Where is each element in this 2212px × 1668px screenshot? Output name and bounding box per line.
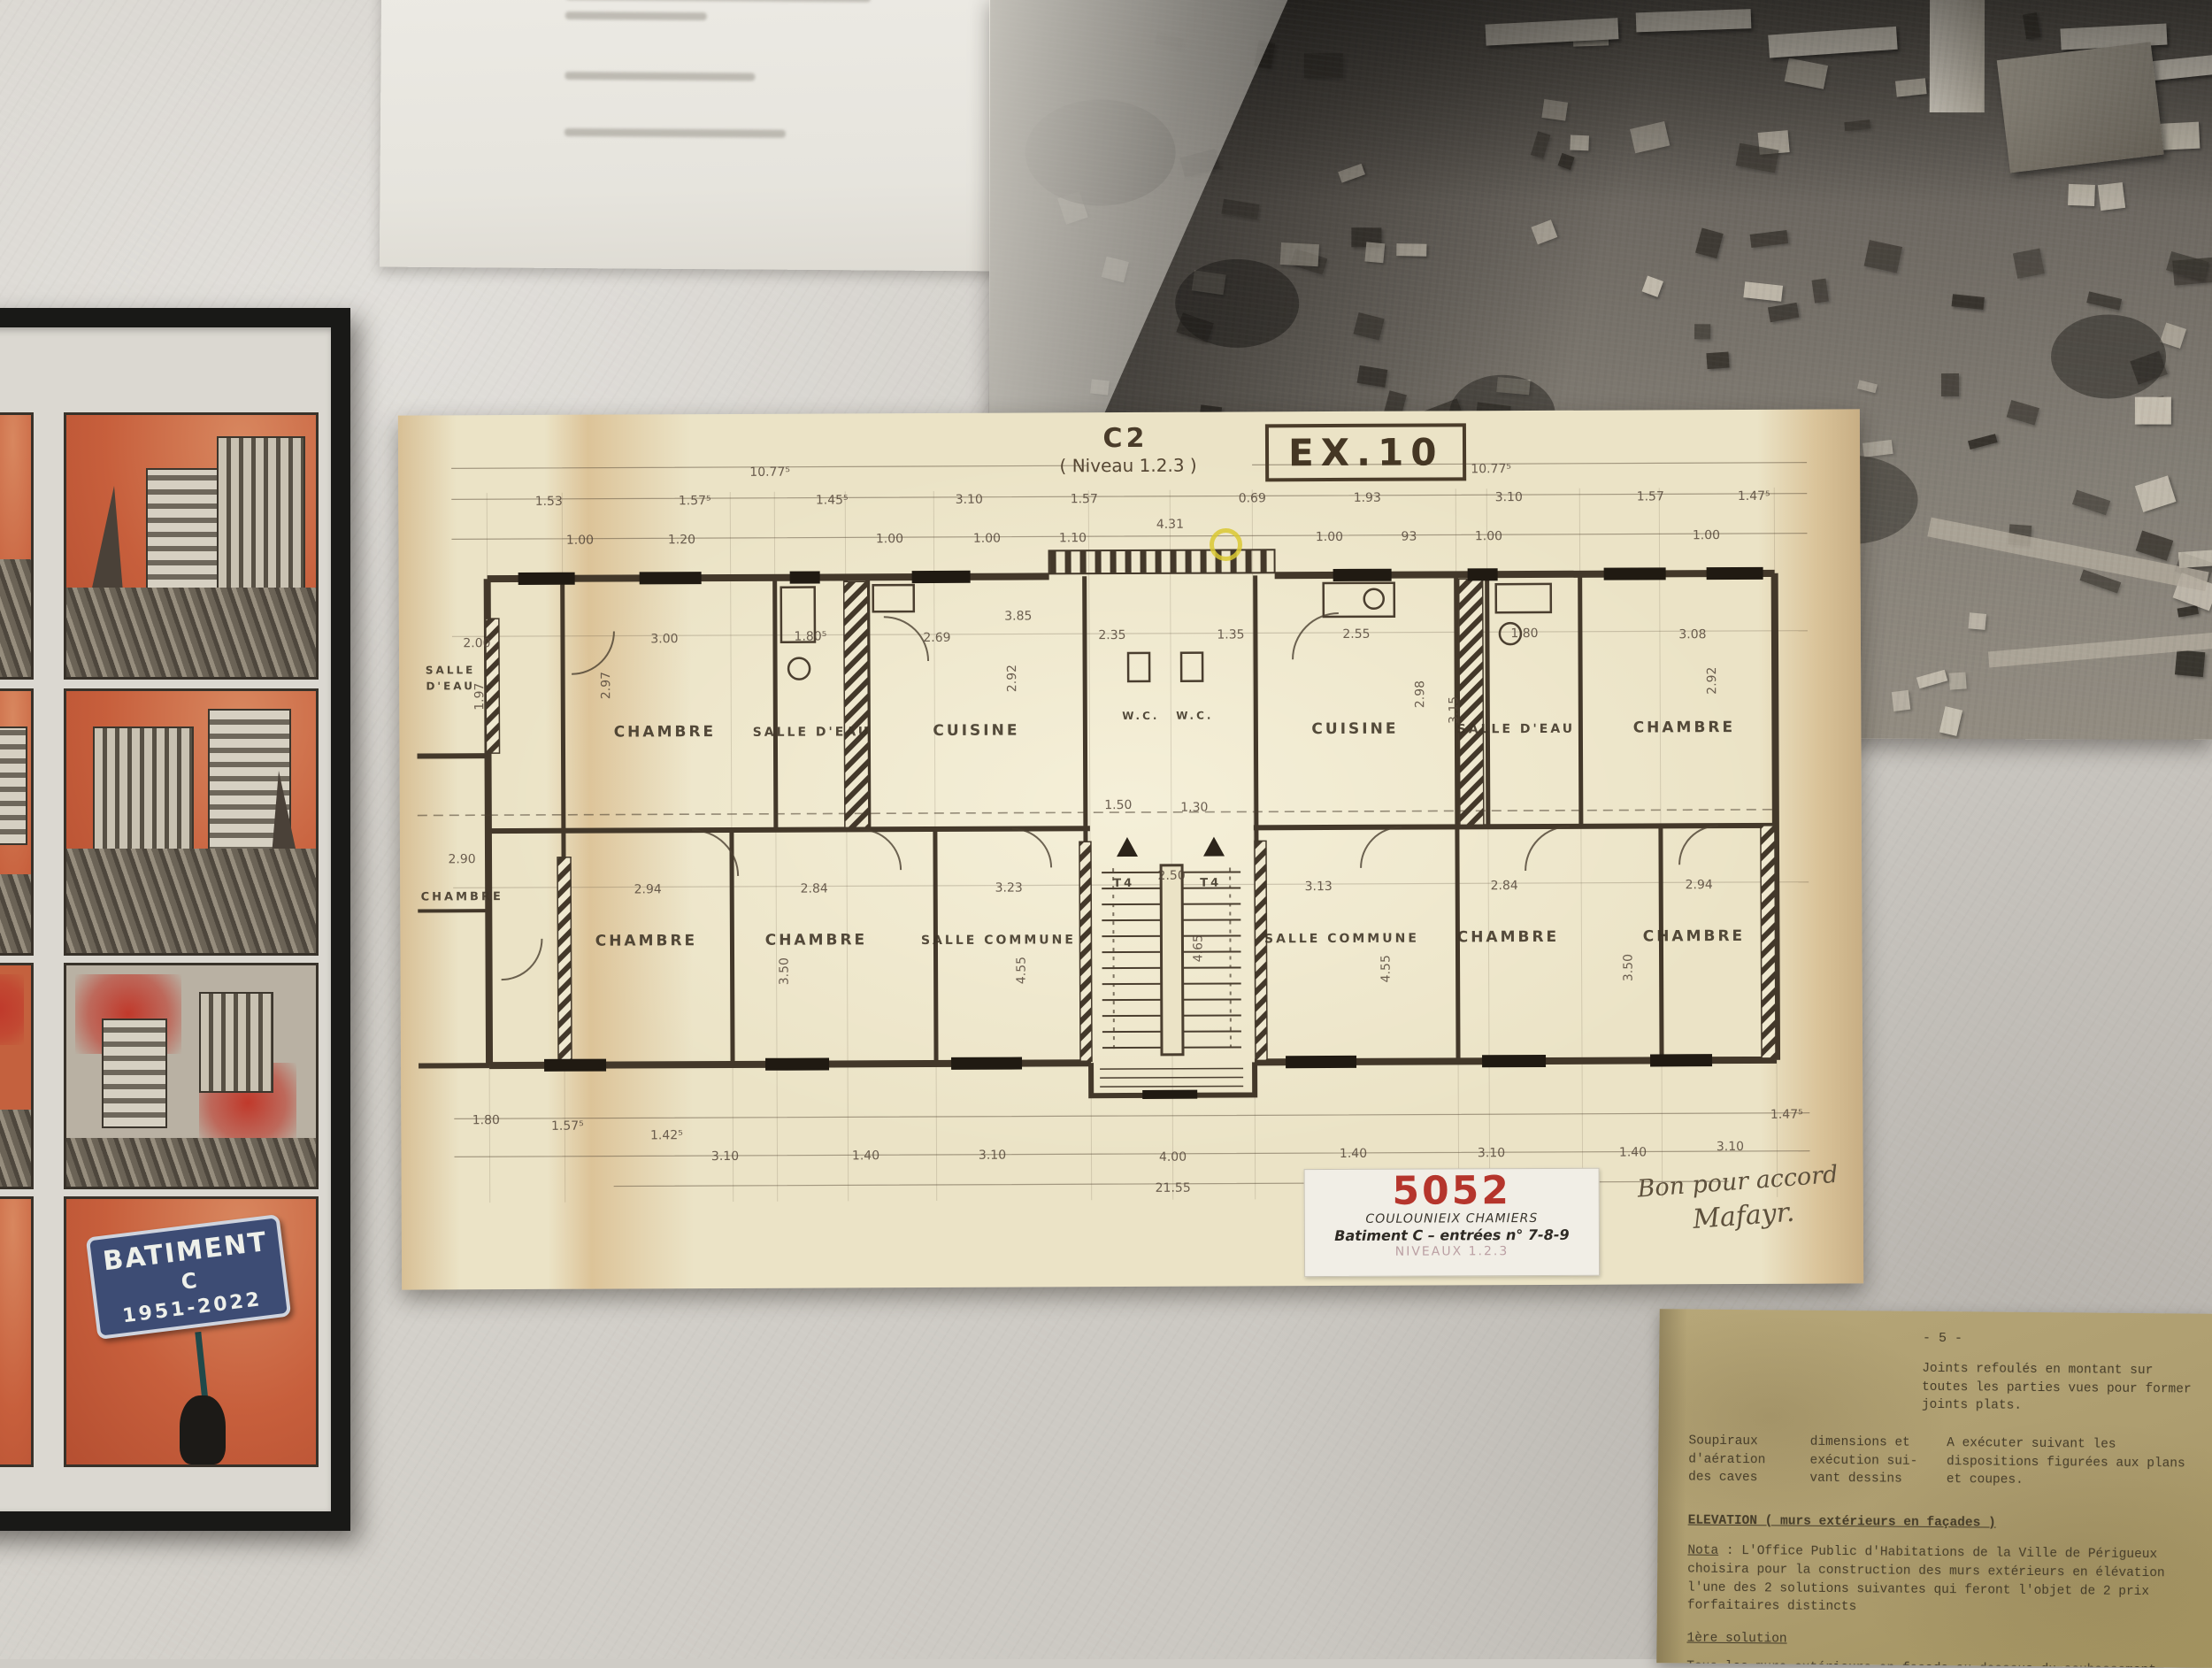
typed-note-line	[565, 0, 871, 2]
doc-page-number: - 5 -	[1841, 1328, 2044, 1349]
panel-sky	[0, 1199, 31, 1464]
floor-plan-svg: 10.77⁵10.77⁵1.531.57⁵1.45⁵3.101.574.310.…	[398, 409, 1863, 1289]
dimension-label: 1.80	[1510, 626, 1538, 641]
stair-direction-arrows	[1117, 837, 1225, 857]
dimension-label: 2.94	[634, 882, 662, 896]
doc-nota-label: Nota	[1687, 1544, 1718, 1558]
dimension-label: 1.57⁵	[679, 494, 711, 508]
dimension-label: 2.50	[1158, 869, 1186, 883]
red-patch	[0, 974, 24, 1045]
dimension-label: 21.55	[1156, 1181, 1191, 1195]
comic-panel-demolition-1	[64, 412, 319, 680]
dimension-label: 4.00	[1159, 1150, 1187, 1165]
dimension-label: 3.10	[956, 493, 983, 507]
dimension-label: 3.15	[1447, 696, 1461, 724]
dimension-label: 1.53	[535, 495, 563, 509]
room-label: SALLE	[426, 664, 475, 676]
dimension-label: 1.40	[1340, 1147, 1367, 1161]
exhibition-wall-photo: { "plan": { "title": "C2", "subtitle": "…	[0, 0, 2212, 1659]
dimension-label: 10.77⁵	[1471, 462, 1511, 476]
doc-three-columns: Soupiraux d'aération des caves dimension…	[1688, 1433, 2195, 1492]
city-building	[199, 992, 273, 1093]
room-label: CHAMBRE	[1633, 719, 1736, 737]
dimension-label: 1.47⁵	[1770, 1108, 1803, 1122]
room-label: SALLE D'EAU	[1457, 722, 1576, 737]
room-label: CHAMBRE	[765, 931, 868, 949]
sticker-building: Batiment C – entrées n° 7-8-9	[1305, 1226, 1599, 1244]
room-label: SALLE D'EAU	[753, 725, 872, 740]
rubble	[0, 559, 31, 677]
dimension-label: 4.55	[1379, 955, 1394, 982]
dimension-label: 0.69	[1239, 491, 1266, 505]
dimension-label: 4.65	[1191, 934, 1205, 962]
exterior-walls	[417, 573, 1778, 1099]
comic-panel-city	[64, 963, 319, 1189]
dimension-label: 2.55	[1342, 627, 1370, 642]
dimension-label: 1.00	[1316, 530, 1343, 544]
dimension-label: 2.92	[1005, 665, 1019, 692]
rubble	[66, 1138, 316, 1187]
spec-document: - 5 - Joints refoulés en montant sur tou…	[1656, 1309, 2212, 1667]
typed-note-line	[565, 72, 755, 81]
dimension-label: 3.10	[1495, 490, 1523, 504]
dimension-label: 2.97	[599, 672, 613, 699]
room-label: D'EAU	[426, 680, 475, 692]
dimension-label: 1.40	[1619, 1145, 1647, 1159]
dimension-label: 1.00	[1693, 528, 1720, 542]
doc-subheading-solution: 1ère solution	[1686, 1629, 2193, 1652]
city-building	[102, 1018, 167, 1128]
dimension-label: 1.57	[1637, 489, 1664, 503]
dimension-label: 1.20	[668, 533, 695, 547]
dimension-label: 2.35	[1098, 628, 1125, 642]
room-label: SALLE COMMUNE	[1264, 932, 1419, 947]
interior-walls	[417, 573, 1777, 1066]
plan-subtitle: ( Niveau 1.2.3 )	[1018, 454, 1239, 476]
room-label: T4	[1200, 877, 1221, 890]
dimension-label: 1.30	[1180, 801, 1208, 815]
dimension-label: 1.00	[1475, 529, 1502, 543]
doc-paragraph-joints: Joints refoulés en montant sur toutes le…	[1922, 1360, 2195, 1417]
doc-col-mid: dimensions et exécution sui- vant dessin…	[1809, 1434, 1947, 1489]
plan-title: C2	[1064, 423, 1187, 455]
sticker-levels: NIVEAUX 1.2.3	[1305, 1244, 1599, 1259]
sticker-number: 5052	[1305, 1171, 1599, 1213]
dimension-label: 2.92	[1705, 667, 1719, 695]
dimension-label: 3.10	[979, 1149, 1006, 1163]
comic-panel-sliver	[0, 963, 34, 1189]
demolition-building	[146, 468, 220, 604]
crane-shape	[91, 486, 123, 592]
floor-plan: 10.77⁵10.77⁵1.531.57⁵1.45⁵3.101.574.310.…	[398, 409, 1863, 1289]
dimension-label: 2.84	[1491, 879, 1518, 893]
typed-note-line	[565, 128, 786, 138]
room-label: CHAMBRE	[614, 723, 717, 742]
dimension-label: 1.40	[852, 1149, 879, 1163]
staircase	[1102, 865, 1241, 1055]
comic-panel-sign: BATIMENT C 1951-2022	[64, 1196, 319, 1467]
dimension-label: 1.80⁵	[795, 629, 827, 643]
room-label: T4	[1113, 877, 1134, 890]
doc-col-right: A exécuter suivant les dispositions figu…	[1947, 1434, 2195, 1491]
dimension-label: 1.00	[973, 532, 1001, 546]
dimension-label: 3.85	[1004, 609, 1032, 623]
dimension-label: 3.08	[1678, 627, 1706, 642]
dimension-label: 1.10	[1059, 531, 1087, 545]
room-label: CHAMBRE	[1643, 927, 1746, 946]
dimension-label: 2.94	[1686, 878, 1713, 892]
rubble	[0, 1110, 31, 1188]
dimension-label: 1.35	[1217, 627, 1244, 642]
dimension-label: 1.45⁵	[816, 493, 849, 507]
comic-panel-demolition-2	[64, 688, 319, 956]
dimension-label: 10.77⁵	[749, 465, 790, 480]
dimension-label: 2.98	[1413, 680, 1427, 708]
dimension-label: 1.00	[876, 532, 903, 546]
dimension-label: 1.80	[472, 1113, 500, 1127]
comic-panel-sliver	[0, 412, 34, 680]
dimension-label: 1.57⁵	[551, 1119, 584, 1134]
dimension-label: 1.57	[1071, 492, 1098, 506]
doc-heading-elevation: ELEVATION ( murs extérieurs en façades )	[1688, 1511, 2194, 1534]
dimension-label: 3.00	[650, 632, 678, 646]
dimension-label: 3.50	[1622, 954, 1636, 981]
dimension-label: 2.00	[463, 636, 490, 650]
comic-panel-sliver	[0, 1196, 34, 1467]
typed-note-line	[565, 12, 707, 20]
dimension-label: 93	[1402, 530, 1417, 544]
doc-nota: Nota : L'Office Public d'Habitations de …	[1687, 1542, 2194, 1619]
room-label: CHAMBRE	[421, 890, 503, 903]
sign-holder-figure	[180, 1395, 226, 1464]
dimension-label: 3.10	[1478, 1146, 1505, 1160]
dimension-label: 1.93	[1354, 491, 1381, 505]
comic-panel-sliver	[0, 688, 34, 956]
room-label: CUISINE	[933, 722, 1019, 740]
room-label: W.C.	[1122, 710, 1159, 722]
room-label: W.C.	[1176, 710, 1213, 722]
demolition-building	[217, 436, 305, 608]
dimension-label: 1.47⁵	[1738, 489, 1770, 503]
sticker-city: COULOUNIEIX CHAMIERS	[1305, 1211, 1599, 1226]
rubble	[66, 849, 316, 953]
dimension-label: 3.10	[711, 1149, 739, 1164]
framed-comic: BATIMENT C 1951-2022	[0, 308, 350, 1531]
dimension-label: 3.13	[1305, 880, 1333, 894]
room-label: CUISINE	[1311, 720, 1398, 738]
balcony-rail	[1049, 550, 1275, 573]
demolition-building	[0, 726, 27, 845]
door-arcs	[500, 611, 1719, 980]
dimension-label: 1.00	[566, 534, 594, 548]
doc-nota-text: : L'Office Public d'Habitations de la Vi…	[1687, 1544, 2165, 1614]
dimension-label: 1.42⁵	[650, 1128, 683, 1142]
dimension-label: 3.23	[995, 881, 1023, 895]
archive-sticker: 5052 COULOUNIEIX CHAMIERS Batiment C – e…	[1304, 1168, 1601, 1277]
dimension-label: 2.69	[923, 631, 950, 645]
dimension-label: 4.31	[1156, 518, 1184, 532]
dimension-label: 2.90	[448, 852, 475, 866]
rubble	[66, 588, 316, 677]
doc-paragraph-murs: Tous les murs extérieurs en façade au-de…	[1686, 1658, 2193, 1668]
dimension-label: 1.50	[1104, 798, 1132, 812]
room-label: SALLE COMMUNE	[921, 933, 1076, 948]
dimension-label: 4.55	[1015, 957, 1029, 984]
comic-mat: BATIMENT C 1951-2022	[0, 327, 331, 1511]
dimension-label: 3.50	[778, 957, 792, 985]
top-left-paper	[380, 0, 1006, 271]
demolition-building	[93, 726, 194, 854]
dimension-label: 2.84	[801, 881, 828, 895]
rubble	[0, 874, 31, 953]
room-label: CHAMBRE	[1457, 928, 1560, 947]
room-label: CHAMBRE	[595, 932, 698, 950]
doc-col-left: Soupiraux d'aération des caves	[1688, 1433, 1810, 1488]
dimension-label: 3.10	[1717, 1140, 1744, 1154]
plan-stamp: EX.10	[1265, 423, 1467, 481]
